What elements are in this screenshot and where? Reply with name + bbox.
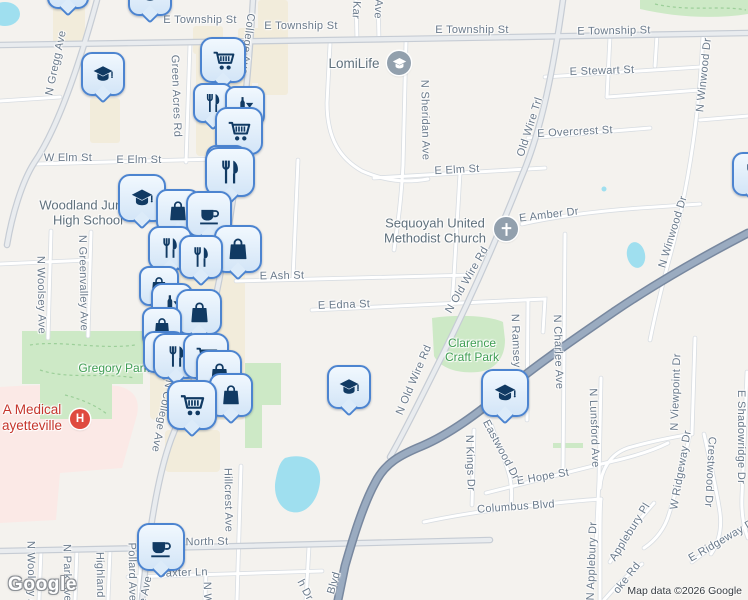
street-label: Hillcrest Ave	[221, 468, 234, 532]
park-label: Clarence Craft Park	[445, 336, 499, 364]
minor-road	[108, 551, 110, 600]
street-label: E Township St	[577, 24, 651, 37]
church-poi[interactable]	[494, 217, 518, 241]
pin-graduation-cap[interactable]	[481, 369, 529, 417]
coffee-icon	[148, 534, 174, 560]
map-canvas[interactable]: E Township StE Township StE Township StE…	[0, 0, 748, 600]
street-label: N Woolsey Ave	[34, 256, 47, 334]
minor-road	[607, 90, 700, 97]
graduation-cap-icon	[129, 185, 155, 211]
minor-road	[655, 35, 657, 66]
coffee-icon	[197, 202, 222, 227]
restaurant-icon	[189, 245, 213, 269]
street-label: E Township St	[163, 14, 236, 26]
street-label: E Stewart St	[569, 64, 634, 78]
minor-road	[186, 44, 190, 162]
map-attribution: Map data ©2026 Google	[627, 585, 742, 597]
pin-restaurant[interactable]	[732, 152, 748, 196]
minor-road	[0, 97, 60, 101]
shopping-cart-icon	[178, 391, 206, 419]
google-logo[interactable]: Google	[8, 574, 77, 596]
pin-graduation-cap[interactable]	[128, 0, 172, 16]
street-label: N Greenvalley Ave	[76, 235, 90, 331]
street-label: E Elm St	[434, 163, 480, 177]
street-label: E Ash St	[260, 270, 305, 283]
shopping-bag-icon	[187, 300, 212, 325]
street-label: E Shadowridge Dr	[735, 390, 747, 484]
street-label: N Kings Dr	[463, 435, 477, 492]
street-label: Kar	[350, 1, 363, 20]
street-label: N W	[201, 582, 213, 600]
minor-road	[650, 36, 703, 340]
poi-label: LomiLife	[328, 56, 379, 72]
pin-graduation-cap[interactable]	[47, 0, 89, 9]
pin-graduation-cap[interactable]	[327, 365, 371, 409]
shopping-cart-icon	[226, 118, 252, 144]
pin-graduation-cap[interactable]	[81, 52, 125, 96]
hospital-label: A Medical ayetteville	[2, 402, 62, 434]
pin-restaurant[interactable]	[179, 235, 223, 279]
street-label: E Edna St	[318, 298, 371, 312]
school-poi[interactable]	[387, 51, 411, 75]
pin-shopping-bag[interactable]	[176, 289, 222, 335]
pin-shopping-cart[interactable]	[167, 380, 217, 430]
street-label: E Elm St	[116, 154, 161, 166]
park-label: Gregory Park	[78, 361, 149, 375]
street-label: Ave	[371, 0, 384, 19]
cross-icon	[497, 220, 516, 239]
street-label: E Township St	[435, 24, 508, 36]
poi-label: Sequoyah United Methodist Church	[384, 216, 486, 247]
pin-restaurant[interactable]	[205, 147, 255, 197]
graduation-cap-icon	[138, 0, 162, 6]
street-label: Highland Ave	[93, 552, 106, 600]
street-label: E Township St	[264, 20, 337, 32]
shopping-bag-icon	[225, 236, 251, 262]
street-label: W Elm St	[44, 152, 92, 164]
street-label: N Sheridan Ave	[418, 80, 431, 161]
shopping-bag-icon	[219, 383, 243, 407]
minor-road	[237, 466, 241, 600]
graduation-cap-icon	[337, 375, 361, 399]
street-label: North St	[186, 536, 229, 549]
pin-shopping-cart[interactable]	[200, 37, 246, 83]
graduation-cap-icon	[91, 62, 115, 86]
pin-coffee[interactable]	[137, 523, 185, 571]
minor-road	[700, 116, 748, 120]
restaurant-icon	[742, 162, 748, 186]
restaurant-icon	[216, 158, 244, 186]
street-label: N Charlee Ave	[551, 314, 566, 389]
graduation-cap-icon	[390, 54, 409, 73]
major-road	[0, 540, 490, 551]
shopping-cart-icon	[211, 48, 236, 73]
minor-road	[600, 499, 601, 600]
hospital-poi[interactable]: H	[70, 409, 90, 429]
graduation-cap-icon	[492, 380, 518, 406]
